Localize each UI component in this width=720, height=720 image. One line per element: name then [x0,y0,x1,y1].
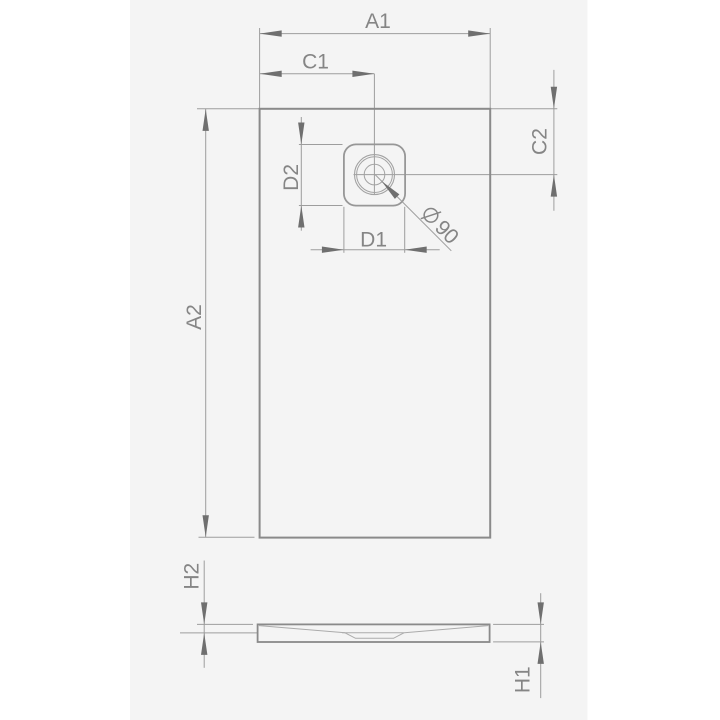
svg-text:H2: H2 [181,563,204,590]
svg-text:D1: D1 [360,229,387,252]
svg-text:D2: D2 [280,164,303,191]
svg-text:H1: H1 [511,666,534,693]
svg-text:A1: A1 [365,10,391,33]
svg-text:C2: C2 [529,128,552,155]
svg-text:A2: A2 [183,304,206,330]
svg-text:C1: C1 [302,51,329,74]
